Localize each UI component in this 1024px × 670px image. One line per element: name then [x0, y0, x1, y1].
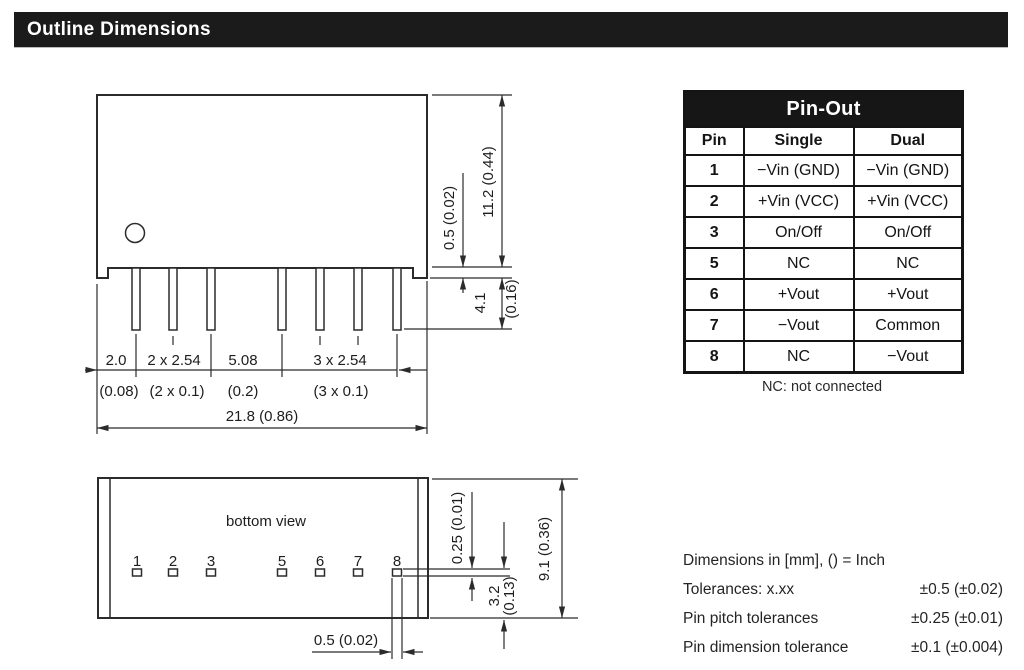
- dual-cell: +Vout: [854, 279, 963, 310]
- dual-cell: Common: [854, 310, 963, 341]
- pin-cell: 6: [685, 279, 744, 310]
- table-row: 8 NC −Vout: [685, 341, 963, 373]
- dim-pin-offset-in: (0.08): [99, 383, 138, 400]
- pin-pad: [316, 569, 325, 576]
- dim-depth: 9.1 (0.36): [536, 517, 553, 581]
- single-cell: −Vout: [744, 310, 854, 341]
- pin-number-6: 6: [316, 553, 324, 570]
- outline-drawing: 2.0 2 x 2.54 5.08 3 x 2.54 (0.08) (2 x 0…: [0, 0, 660, 670]
- tolerance-row: Pin dimension tolerance ±0.1 (±0.004): [683, 633, 1003, 662]
- dim-pin-len-mm: 4.1: [472, 293, 489, 314]
- dim-height: 11.2 (0.44): [480, 146, 497, 217]
- dual-cell: On/Off: [854, 217, 963, 248]
- pin-lead: [132, 268, 140, 330]
- dim-pad-edge-in: (0.13): [501, 576, 518, 615]
- pin-number-8: 8: [393, 553, 401, 570]
- dual-cell: +Vin (VCC): [854, 186, 963, 217]
- single-cell: −Vin (GND): [744, 155, 854, 186]
- dual-cell: −Vin (GND): [854, 155, 963, 186]
- tolerance-value: ±0.25 (±0.01): [911, 604, 1003, 633]
- pin-cell: 5: [685, 248, 744, 279]
- pin-lead: [207, 268, 215, 330]
- dim-pin-offset-mm: 2.0: [106, 352, 127, 369]
- pin-lead: [278, 268, 286, 330]
- pinout-title: Pin-Out: [685, 92, 963, 127]
- pin-lead: [169, 268, 177, 330]
- dimension-notes: Dimensions in [mm], () = Inch Tolerances…: [683, 546, 1003, 662]
- table-row: 7 −Vout Common: [685, 310, 963, 341]
- pin-pad: [393, 569, 402, 576]
- side-view: 2.0 2 x 2.54 5.08 3 x 2.54 (0.08) (2 x 0…: [85, 95, 520, 434]
- pin-cell: 1: [685, 155, 744, 186]
- pin1-indicator-circle: [126, 224, 145, 243]
- pin-number-1: 1: [133, 553, 141, 570]
- pin-pad: [133, 569, 142, 576]
- dim-width: 21.8 (0.86): [226, 408, 299, 425]
- bottom-view-label: bottom view: [226, 513, 306, 530]
- single-cell: +Vout: [744, 279, 854, 310]
- package-body: [97, 95, 427, 278]
- pin-cell: 2: [685, 186, 744, 217]
- dual-cell: NC: [854, 248, 963, 279]
- dim-pad-width: 0.5 (0.02): [314, 632, 378, 649]
- units-note-text: Dimensions in [mm], () = Inch: [683, 546, 885, 575]
- units-note: Dimensions in [mm], () = Inch: [683, 546, 1003, 575]
- pin-cell: 7: [685, 310, 744, 341]
- dim-pin-len-in: (0.16): [503, 279, 520, 318]
- dual-cell: −Vout: [854, 341, 963, 373]
- pin-pad: [207, 569, 216, 576]
- dim-gap-in: (0.2): [228, 383, 259, 400]
- single-cell: On/Off: [744, 217, 854, 248]
- col-header-dual: Dual: [854, 127, 963, 156]
- table-row: 5 NC NC: [685, 248, 963, 279]
- bottom-view: bottom view 1 2 3 5 6 7 8 0.25 (0.01) 3.…: [98, 478, 578, 659]
- dim-standoff: 0.5 (0.02): [441, 186, 458, 250]
- single-cell: NC: [744, 248, 854, 279]
- col-header-single: Single: [744, 127, 854, 156]
- tolerance-label: Tolerances: x.xx: [683, 575, 794, 604]
- pin-cell: 8: [685, 341, 744, 373]
- pin-pad: [169, 569, 178, 576]
- pin-number-2: 2: [169, 553, 177, 570]
- dim-pitch2-in: (2 x 0.1): [149, 383, 204, 400]
- pinout-table: Pin-Out Pin Single Dual 1 −Vin (GND) −Vi…: [683, 90, 964, 374]
- single-cell: NC: [744, 341, 854, 373]
- tolerance-value: ±0.1 (±0.004): [911, 633, 1003, 662]
- dim-gap-mm: 5.08: [228, 352, 257, 369]
- single-cell: +Vin (VCC): [744, 186, 854, 217]
- pin-pad: [354, 569, 363, 576]
- tolerance-value: ±0.5 (±0.02): [920, 575, 1003, 604]
- tolerance-label: Pin pitch tolerances: [683, 604, 818, 633]
- pin-number-3: 3: [207, 553, 215, 570]
- dim-pitch3-mm: 3 x 2.54: [313, 352, 366, 369]
- pin-lead: [354, 268, 362, 330]
- dim-pitch3-in: (3 x 0.1): [313, 383, 368, 400]
- pin-number-5: 5: [278, 553, 286, 570]
- table-row: 1 −Vin (GND) −Vin (GND): [685, 155, 963, 186]
- dim-pitch2-mm: 2 x 2.54: [147, 352, 200, 369]
- table-row: 6 +Vout +Vout: [685, 279, 963, 310]
- bottom-view-outline: [98, 478, 428, 618]
- pin-lead: [393, 268, 401, 330]
- pin-cell: 3: [685, 217, 744, 248]
- dim-pad-thickness: 0.25 (0.01): [449, 492, 466, 565]
- table-row: 3 On/Off On/Off: [685, 217, 963, 248]
- tolerance-label: Pin dimension tolerance: [683, 633, 848, 662]
- pin-pad: [278, 569, 287, 576]
- pin-number-7: 7: [354, 553, 362, 570]
- pin-lead: [316, 268, 324, 330]
- tolerance-row: Pin pitch tolerances ±0.25 (±0.01): [683, 604, 1003, 633]
- tolerance-row: Tolerances: x.xx ±0.5 (±0.02): [683, 575, 1003, 604]
- nc-footnote: NC: not connected: [683, 379, 961, 395]
- col-header-pin: Pin: [685, 127, 744, 156]
- table-row: 2 +Vin (VCC) +Vin (VCC): [685, 186, 963, 217]
